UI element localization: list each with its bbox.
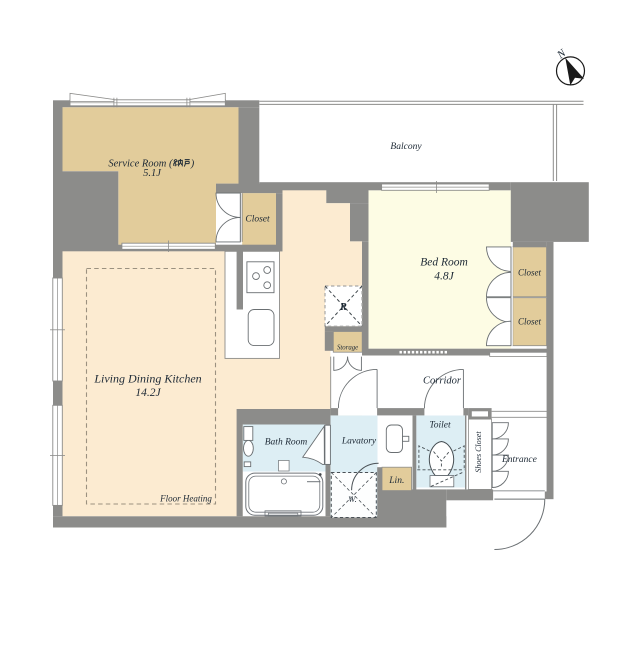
svg-text:14.2J: 14.2J <box>135 387 161 399</box>
svg-text:Entrance: Entrance <box>501 455 537 465</box>
svg-text:Toilet: Toilet <box>429 421 451 431</box>
svg-text:Closet: Closet <box>245 215 270 225</box>
svg-text:R: R <box>339 302 347 313</box>
svg-text:Service Room (: Service Room ( <box>108 159 174 170</box>
svg-text:Corridor: Corridor <box>423 376 462 387</box>
svg-text:Storage: Storage <box>337 344 358 351</box>
svg-text:4.8J: 4.8J <box>434 271 454 283</box>
svg-text:Lin.: Lin. <box>388 476 404 486</box>
svg-text:Floor Heating: Floor Heating <box>159 494 212 504</box>
svg-text:W.: W. <box>348 494 356 504</box>
svg-text:Closet: Closet <box>518 268 542 278</box>
svg-text:Living Dining Kitchen: Living Dining Kitchen <box>93 372 201 386</box>
svg-text:): ) <box>190 159 195 170</box>
svg-text:Bed Room: Bed Room <box>420 257 468 269</box>
svg-text:Shoes Closet: Shoes Closet <box>474 431 483 473</box>
svg-text:Lavatory: Lavatory <box>341 437 377 447</box>
svg-text:Balcony: Balcony <box>390 142 422 152</box>
svg-text:Bath Room: Bath Room <box>265 438 308 448</box>
svg-text:Closet: Closet <box>518 317 542 327</box>
svg-text:5.1J: 5.1J <box>143 168 162 179</box>
